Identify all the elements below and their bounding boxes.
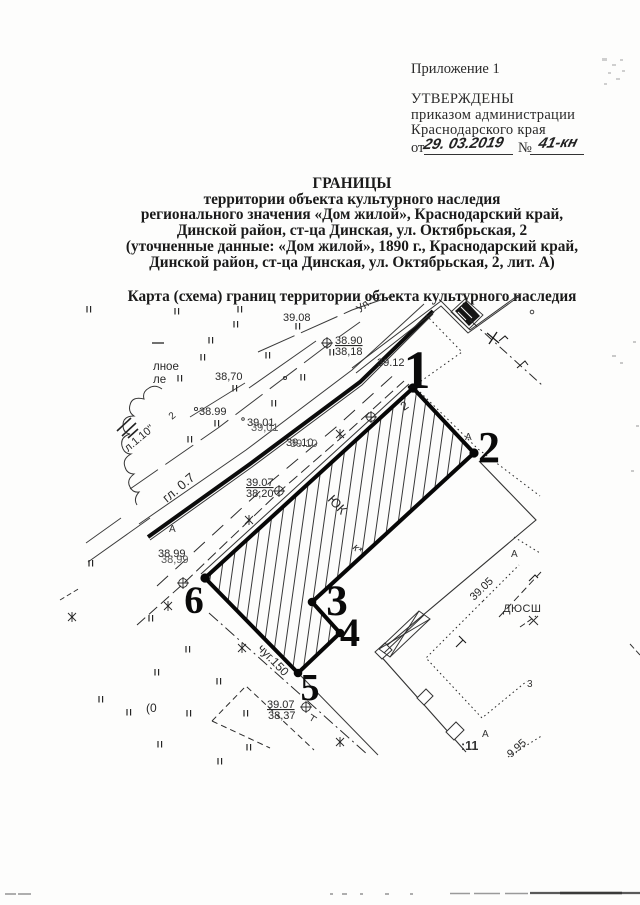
svg-text:А: А <box>482 729 489 740</box>
svg-text:39.10: 39.10 <box>290 438 318 450</box>
svg-text:2: 2 <box>478 423 500 472</box>
svg-text:39.05: 39.05 <box>468 575 496 603</box>
svg-text:4: 4 <box>340 610 360 655</box>
svg-text:А: А <box>169 524 176 535</box>
svg-text:А: А <box>511 549 518 560</box>
svg-text:38,70: 38,70 <box>215 371 243 383</box>
svg-text:ле: ле <box>153 374 166 386</box>
svg-text:38,18: 38,18 <box>335 346 363 358</box>
svg-text:(0: (0 <box>146 701 157 715</box>
svg-text:39.08: 39.08 <box>283 312 311 324</box>
svg-text:38,37: 38,37 <box>268 710 296 722</box>
svg-text:9.95: 9.95 <box>505 737 529 760</box>
svg-text:38.99: 38.99 <box>199 406 227 418</box>
svg-text:лное: лное <box>153 361 179 373</box>
svg-text:ДЮСШ: ДЮСШ <box>503 603 541 615</box>
svg-text:Ул. О: Ул. О <box>354 295 383 315</box>
svg-text:38,20: 38,20 <box>246 488 274 500</box>
svg-text:л.1.10": л.1.10" <box>122 423 156 455</box>
svg-text:38,99: 38,99 <box>161 554 189 566</box>
svg-text:А: А <box>465 432 472 443</box>
svg-text:2: 2 <box>167 410 179 422</box>
svg-text:39.12: 39.12 <box>377 357 405 369</box>
svg-text::11: :11 <box>461 739 478 753</box>
svg-text:5: 5 <box>301 667 320 709</box>
svg-text:39,01: 39,01 <box>251 422 279 434</box>
svg-text:1: 1 <box>404 340 431 400</box>
svg-text:3: 3 <box>527 679 533 690</box>
